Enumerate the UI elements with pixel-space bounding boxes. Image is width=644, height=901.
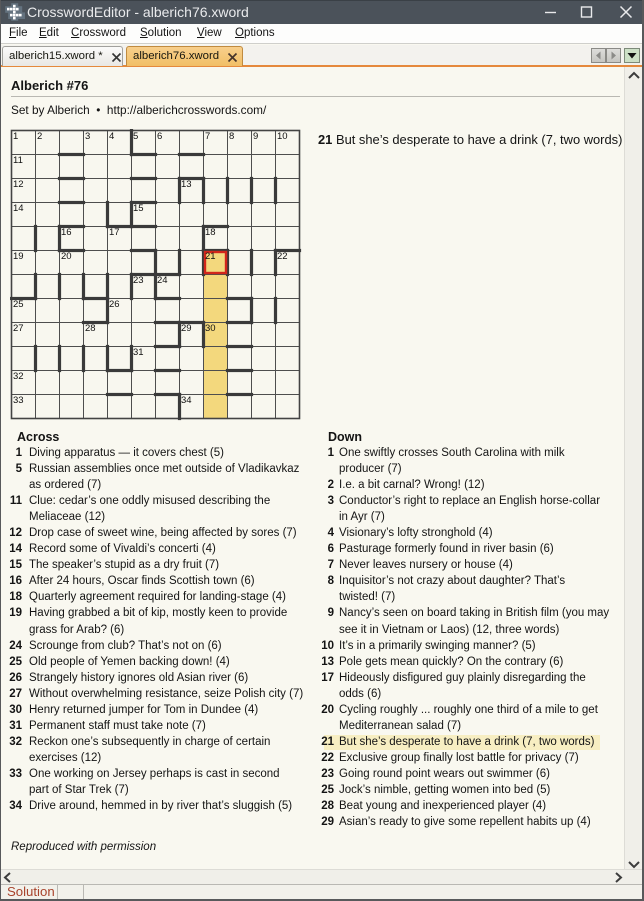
svg-text:31: 31 — [133, 347, 144, 358]
svg-text:28: 28 — [85, 323, 96, 334]
svg-text:6: 6 — [157, 131, 162, 142]
svg-text:13: 13 — [181, 179, 192, 190]
svg-text:8: 8 — [229, 131, 234, 142]
svg-text:7: 7 — [205, 131, 210, 142]
svg-text:25: 25 — [13, 299, 24, 310]
svg-text:11: 11 — [13, 155, 23, 166]
svg-text:30: 30 — [205, 323, 216, 334]
svg-text:33: 33 — [13, 395, 24, 406]
svg-text:16: 16 — [61, 227, 72, 238]
svg-text:20: 20 — [61, 251, 72, 262]
svg-text:14: 14 — [13, 203, 24, 214]
svg-text:18: 18 — [205, 227, 216, 238]
svg-text:24: 24 — [157, 275, 168, 286]
svg-text:34: 34 — [181, 395, 192, 406]
svg-text:5: 5 — [133, 131, 138, 142]
svg-text:23: 23 — [133, 275, 144, 286]
svg-text:15: 15 — [133, 203, 144, 214]
svg-text:4: 4 — [109, 131, 114, 142]
svg-text:10: 10 — [277, 131, 288, 142]
svg-text:32: 32 — [13, 371, 24, 382]
svg-text:29: 29 — [181, 323, 192, 334]
svg-text:1: 1 — [13, 131, 18, 142]
svg-text:27: 27 — [13, 323, 24, 334]
svg-text:2: 2 — [37, 131, 42, 142]
svg-text:21: 21 — [205, 251, 216, 262]
svg-text:17: 17 — [109, 227, 120, 238]
svg-text:12: 12 — [13, 179, 24, 190]
svg-text:26: 26 — [109, 299, 120, 310]
svg-text:3: 3 — [85, 131, 90, 142]
svg-text:19: 19 — [13, 251, 24, 262]
svg-text:22: 22 — [277, 251, 288, 262]
svg-text:9: 9 — [253, 131, 258, 142]
